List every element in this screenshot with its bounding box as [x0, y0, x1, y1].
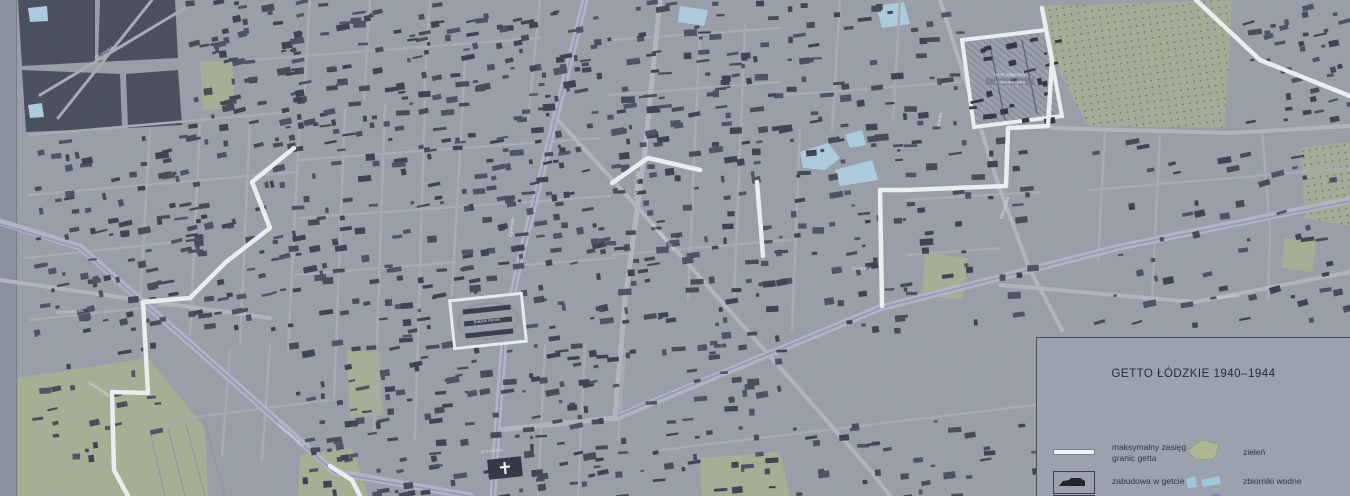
building-footprint [403, 482, 413, 489]
building-footprint [738, 344, 747, 350]
building-footprint [640, 142, 647, 147]
building-footprint [633, 259, 639, 263]
building-footprint [788, 37, 793, 43]
building-footprint [723, 238, 726, 244]
building-footprint [246, 314, 252, 321]
building-footprint [626, 139, 630, 145]
building-footprint [157, 218, 163, 225]
building-footprint [776, 350, 787, 353]
building-footprint [201, 214, 208, 219]
building-footprint [551, 194, 557, 201]
building-footprint [705, 72, 710, 76]
building-footprint [731, 377, 741, 383]
building-footprint [369, 122, 375, 128]
building-footprint [395, 490, 399, 493]
building-footprint [411, 201, 415, 205]
building-footprint [699, 36, 703, 39]
building-footprint [594, 465, 601, 468]
building-footprint [279, 182, 285, 188]
building-footprint [372, 161, 379, 167]
building-footprint [954, 86, 958, 90]
building-footprint [510, 67, 514, 69]
building-footprint [917, 207, 925, 213]
building-footprint [872, 326, 880, 333]
building-footprint [582, 62, 589, 66]
building-footprint [244, 28, 250, 34]
building-footprint [712, 142, 719, 147]
building-footprint [774, 250, 788, 254]
building-footprint [621, 438, 627, 445]
building-footprint [656, 246, 669, 253]
building-footprint [831, 266, 842, 274]
building-footprint [756, 293, 760, 297]
building-footprint [906, 173, 917, 178]
building-footprint [904, 106, 917, 112]
building-footprint [234, 96, 239, 100]
building-footprint [904, 144, 917, 147]
building-footprint [723, 317, 727, 323]
building-footprint [788, 58, 792, 61]
building-footprint [272, 240, 278, 244]
street-label: Dworska [852, 265, 872, 272]
building-footprint [194, 240, 204, 247]
building-footprint [931, 465, 936, 468]
building-footprint [333, 268, 345, 273]
area-label: z obszaru getta [995, 80, 1026, 85]
building-footprint [474, 347, 480, 354]
building-footprint [916, 53, 927, 58]
building-footprint [387, 408, 394, 415]
building-footprint [403, 319, 412, 326]
building-footprint [598, 227, 604, 231]
building-footprint [662, 349, 667, 355]
building-footprint [926, 21, 933, 28]
building-footprint [852, 423, 860, 428]
building-footprint [904, 287, 908, 291]
building-footprint [618, 288, 632, 295]
building-footprint [185, 0, 195, 6]
building-footprint [755, 74, 768, 81]
map-margin-strip [0, 0, 16, 496]
building-footprint [137, 186, 145, 191]
building-footprint [741, 464, 754, 469]
building-footprint [955, 221, 963, 227]
green-area [1282, 238, 1316, 272]
building-footprint [720, 371, 728, 374]
building-footprint [806, 150, 817, 157]
church [487, 456, 523, 479]
building-footprint [751, 171, 755, 177]
building-footprint [219, 124, 229, 132]
building-footprint [105, 426, 110, 430]
building-footprint [731, 462, 738, 468]
building-footprint [503, 379, 517, 385]
building-footprint [903, 113, 908, 120]
building-footprint [769, 486, 776, 488]
building-footprint [871, 6, 881, 12]
building-footprint [698, 49, 710, 54]
building-footprint [747, 378, 759, 386]
building-footprint [875, 469, 881, 476]
building-footprint [1113, 294, 1117, 297]
legend-row: maksymalny zasięg granic getta zieleń [1037, 441, 1350, 467]
building-footprint [72, 454, 80, 460]
building-footprint [312, 173, 316, 179]
building-footprint [871, 143, 877, 147]
building-footprint [874, 133, 888, 141]
building-footprint [768, 16, 779, 20]
building-footprint [424, 50, 429, 55]
building-footprint [480, 370, 493, 378]
building-footprint [752, 148, 761, 155]
building-footprint [396, 82, 405, 90]
building-footprint [961, 250, 966, 253]
building-footprint [895, 315, 906, 322]
building-footprint [490, 432, 501, 439]
building-footprint [790, 139, 794, 143]
building-footprint [517, 117, 527, 122]
building-footprint [322, 277, 333, 284]
building-footprint [626, 230, 636, 235]
building-footprint [499, 25, 507, 32]
building-footprint [747, 332, 757, 336]
building-footprint [721, 344, 726, 348]
building-footprint [303, 96, 307, 102]
building-footprint [670, 120, 680, 127]
building-footprint [636, 7, 641, 11]
ghetto-boundary-swatch [1053, 449, 1095, 455]
building-footprint [619, 152, 630, 160]
building-footprint [116, 277, 120, 283]
building-footprint [709, 276, 715, 284]
building-footprint [1300, 46, 1306, 52]
building-footprint [542, 298, 547, 301]
railway-line-swatch [1183, 491, 1225, 496]
building-footprint [861, 323, 866, 327]
building-footprint [396, 389, 406, 395]
building-footprint [427, 235, 437, 243]
building-footprint [820, 149, 824, 152]
building-footprint [219, 50, 227, 58]
building-footprint [53, 434, 60, 438]
cemetery-orchard-area [1300, 142, 1350, 226]
building-footprint [897, 149, 901, 151]
building-footprint [621, 96, 635, 103]
legend-item-label: zbiorniki wodne [1243, 476, 1343, 487]
building-footprint [522, 109, 530, 114]
building-footprint [754, 434, 760, 440]
building-footprint [351, 346, 360, 351]
building-footprint [453, 146, 463, 151]
building-footprint [407, 58, 411, 62]
building-footprint [736, 158, 744, 166]
building-footprint [1303, 32, 1309, 36]
building-footprint [862, 244, 866, 247]
building-footprint [793, 427, 797, 430]
building-footprint [834, 12, 840, 17]
building-footprint [962, 140, 967, 145]
building-footprint [204, 139, 208, 145]
building-footprint [1012, 166, 1020, 172]
building-footprint [615, 471, 623, 478]
building-footprint [536, 177, 548, 183]
building-footprint [468, 133, 476, 138]
building-footprint [418, 14, 425, 20]
building-footprint [486, 159, 493, 163]
building-footprint [427, 325, 431, 330]
building-footprint [242, 19, 248, 26]
building-footprint [765, 468, 770, 474]
building-footprint [424, 413, 431, 420]
building-footprint [574, 67, 580, 72]
building-footprint [531, 127, 544, 133]
building-footprint [761, 261, 769, 267]
building-footprint [714, 344, 721, 348]
building-footprint [487, 64, 495, 71]
building-footprint [519, 254, 523, 259]
building-footprint [760, 42, 769, 47]
building-footprint [376, 469, 381, 473]
building-footprint [271, 327, 276, 332]
building-footprint [1247, 238, 1251, 242]
building-footprint [450, 480, 455, 487]
building-footprint [530, 444, 534, 451]
building-footprint [293, 97, 304, 103]
building-footprint [854, 237, 860, 240]
building-footprint [643, 200, 650, 206]
green-area-swatch [1183, 436, 1225, 467]
building-footprint [745, 260, 759, 265]
building-footprint [920, 238, 934, 246]
building-footprint [989, 150, 993, 156]
building-footprint [460, 439, 469, 446]
building-footprint [560, 64, 567, 71]
building-footprint [596, 73, 602, 80]
building-footprint [598, 418, 604, 425]
building-footprint [922, 247, 929, 254]
building-footprint [695, 436, 700, 439]
dense-block [126, 70, 182, 128]
building-footprint [325, 207, 329, 213]
building-footprint [756, 1, 764, 7]
building-footprint [926, 163, 938, 170]
building-footprint [537, 484, 546, 492]
building-footprint [1042, 81, 1047, 87]
building-footprint [919, 38, 927, 45]
building-footprint [667, 420, 676, 424]
building-footprint [556, 57, 565, 63]
building-footprint [647, 210, 654, 216]
building-footprint [927, 37, 940, 42]
building-footprint [779, 236, 782, 239]
building-footprint [450, 73, 460, 78]
building-footprint [858, 291, 867, 298]
building-footprint [841, 83, 849, 90]
building-footprint [427, 42, 431, 46]
building-footprint [234, 1, 239, 5]
building-footprint [196, 219, 201, 224]
building-footprint [155, 402, 162, 405]
building-footprint [724, 406, 738, 412]
building-footprint [594, 39, 602, 46]
building-footprint [337, 400, 344, 406]
building-footprint [234, 325, 239, 331]
building-footprint [345, 420, 359, 427]
building-footprint [559, 400, 563, 404]
building-footprint [681, 467, 685, 472]
building-footprint [840, 159, 845, 164]
building-footprint [865, 220, 871, 224]
building-footprint [223, 140, 228, 146]
building-footprint [885, 102, 894, 105]
building-footprint [459, 103, 470, 107]
building-footprint [706, 430, 713, 435]
building-footprint [544, 152, 553, 157]
building-footprint [591, 238, 599, 244]
building-footprint [768, 93, 776, 97]
building-footprint [72, 209, 80, 214]
building-footprint [414, 366, 419, 372]
building-footprint [903, 218, 906, 221]
building-footprint [90, 228, 96, 235]
building-footprint [569, 403, 575, 407]
building-footprint [891, 73, 904, 80]
building-footprint [340, 215, 345, 220]
building-footprint [707, 92, 716, 97]
building-footprint [518, 199, 522, 202]
building-footprint [851, 204, 854, 206]
building-footprint [741, 468, 745, 472]
building-footprint [971, 174, 985, 180]
building-footprint [1192, 322, 1198, 328]
building-footprint [866, 123, 878, 130]
building-footprint [917, 121, 923, 126]
building-footprint [576, 26, 584, 33]
building-footprint [1017, 273, 1023, 278]
building-footprint [839, 434, 849, 441]
building-footprint [310, 447, 320, 452]
building-footprint [193, 181, 200, 187]
building-footprint [150, 342, 156, 348]
building-footprint [1008, 292, 1021, 299]
building-footprint [794, 233, 801, 238]
building-footprint [964, 263, 968, 267]
building-footprint [546, 191, 553, 195]
building-footprint [829, 222, 835, 227]
building-footprint [120, 230, 130, 237]
building-footprint [553, 160, 559, 163]
legend-panel: GETTO ŁÓDZKIE 1940–1944 maksymalny zasię… [1036, 337, 1350, 496]
building-footprint [690, 279, 703, 285]
building-footprint [571, 343, 583, 349]
building-footprint [719, 307, 723, 312]
area-label: teren wyłączony [994, 72, 1026, 77]
building-footprint [361, 255, 369, 263]
building-footprint [953, 121, 957, 126]
building-footprint [372, 115, 377, 119]
building-footprint [355, 227, 366, 234]
building-footprint [51, 288, 55, 292]
building-footprint [399, 338, 413, 343]
building-footprint [392, 162, 406, 168]
building-footprint [728, 396, 735, 403]
building-footprint [988, 196, 993, 200]
building-footprint [900, 473, 909, 479]
building-footprint [759, 282, 763, 286]
building-footprint [381, 375, 385, 380]
building-footprint [1015, 216, 1028, 224]
building-footprint [725, 112, 731, 118]
building-footprint [722, 223, 734, 229]
building-footprint [131, 327, 136, 331]
building-footprint [553, 213, 560, 220]
building-footprint [298, 122, 305, 129]
building-footprint [303, 196, 309, 203]
water-body [28, 103, 44, 118]
building-footprint [546, 113, 550, 117]
building-footprint [327, 448, 332, 452]
building-footprint [131, 370, 135, 377]
building-footprint [493, 412, 499, 417]
building-footprint [974, 319, 978, 325]
building-footprint [538, 107, 545, 110]
building-footprint [445, 35, 451, 42]
building-footprint [539, 377, 548, 384]
building-footprint [363, 116, 367, 122]
building-footprint [473, 80, 479, 83]
legend-title: GETTO ŁÓDZKIE 1940–1944 [1037, 368, 1350, 380]
building-footprint [684, 52, 692, 59]
building-footprint [742, 390, 747, 397]
building-footprint [465, 391, 468, 393]
building-footprint [523, 427, 534, 432]
building-footprint [352, 298, 360, 304]
building-footprint [581, 481, 587, 487]
building-footprint [510, 149, 524, 156]
building-footprint [333, 129, 340, 134]
building-footprint [539, 83, 545, 86]
building-footprint [292, 205, 305, 210]
building-footprint [749, 409, 755, 416]
building-footprint [887, 11, 893, 14]
building-footprint [128, 296, 139, 303]
building-footprint [646, 401, 657, 405]
building-footprint [844, 190, 851, 195]
building-footprint [530, 436, 534, 440]
building-footprint [721, 332, 731, 340]
building-footprint [647, 164, 655, 169]
building-footprint [323, 481, 332, 488]
building-footprint [894, 328, 900, 334]
building-footprint [288, 245, 299, 252]
building-footprint [987, 161, 998, 168]
building-footprint [870, 60, 878, 66]
building-footprint [812, 252, 818, 255]
building-footprint [595, 445, 608, 450]
building-footprint [129, 172, 137, 178]
building-footprint [157, 280, 162, 285]
building-footprint [715, 323, 719, 327]
building-footprint [712, 1, 719, 6]
building-footprint [775, 358, 782, 365]
building-footprint [462, 189, 467, 194]
building-footprint [1194, 200, 1199, 206]
building-footprint [297, 114, 302, 120]
building-footprint [675, 175, 681, 181]
building-footprint [665, 168, 675, 176]
building-footprint [483, 13, 489, 19]
building-footprint [587, 123, 593, 128]
